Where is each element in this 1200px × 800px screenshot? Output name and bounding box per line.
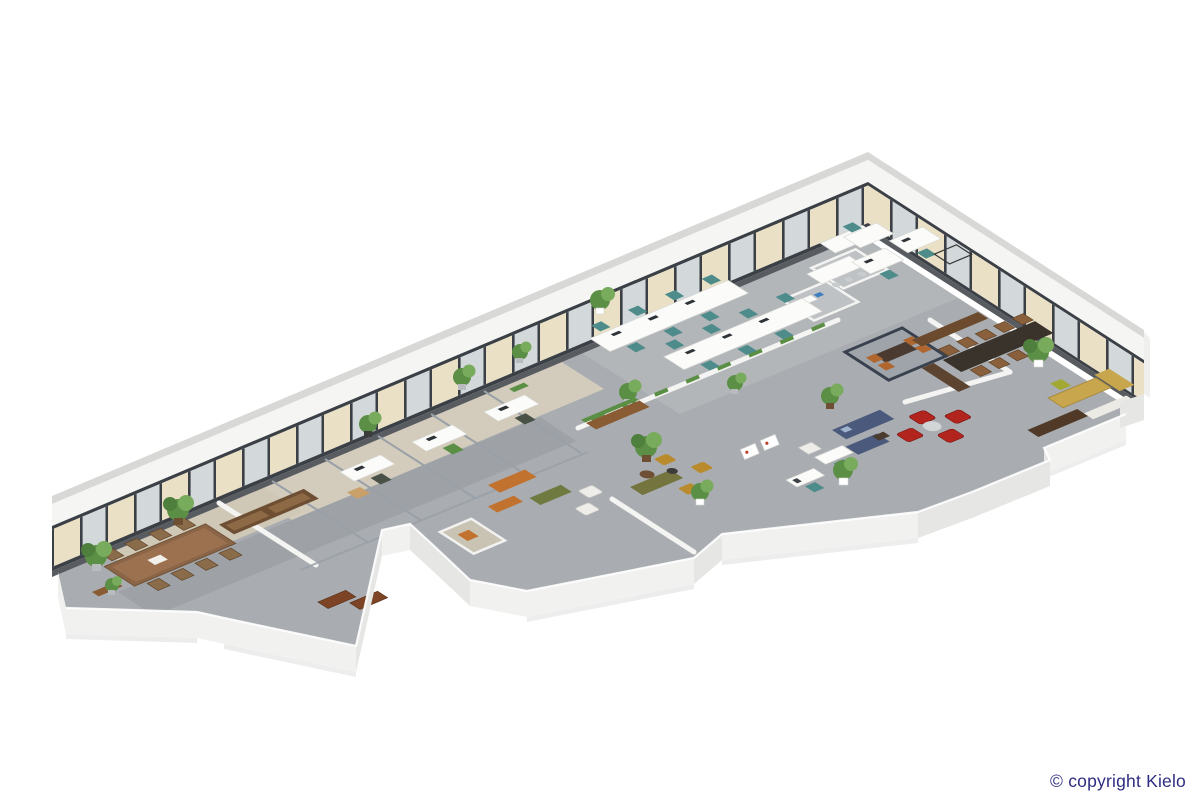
office-floorplan-render: © copyright Kielo [0,0,1200,800]
copyright-text: © copyright Kielo [1050,771,1186,792]
end-wall-east [1144,332,1150,398]
isometric-floorplan-illustration [0,0,1200,800]
